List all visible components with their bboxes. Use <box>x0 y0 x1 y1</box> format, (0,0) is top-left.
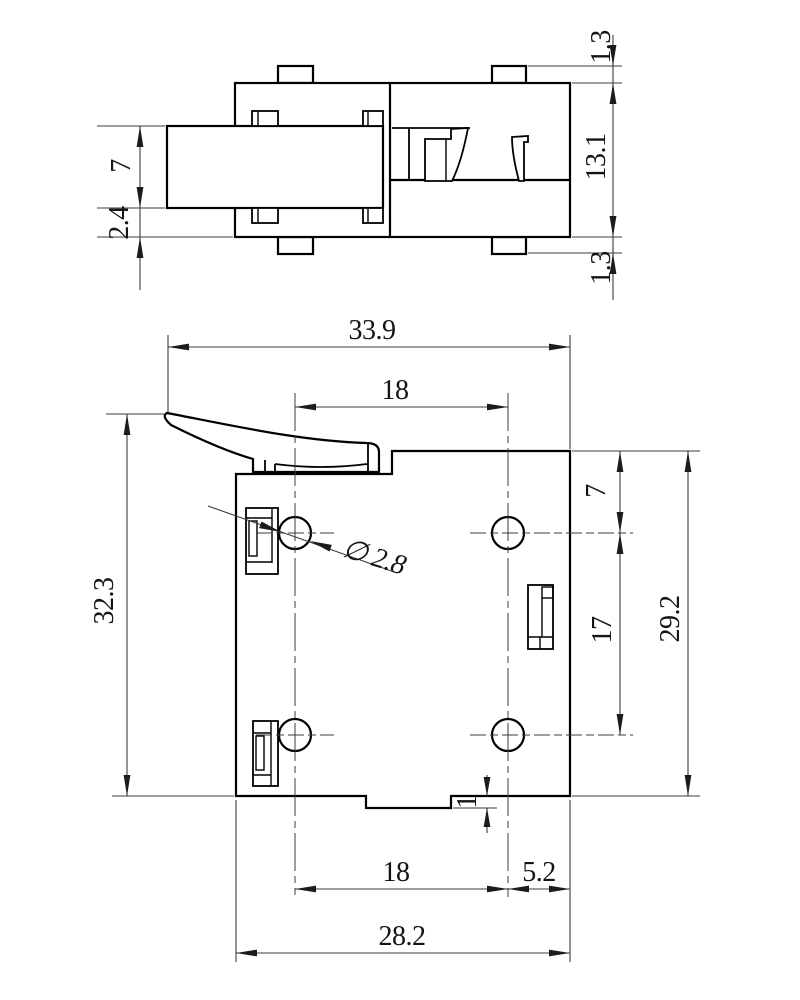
arrow-up-icon <box>617 451 624 472</box>
arrow-left-icon <box>236 950 257 957</box>
arrow-up-icon <box>610 83 617 104</box>
actuator-slider-outline <box>167 126 383 208</box>
dim-label-hole-edge-offset: 5.2 <box>522 857 556 888</box>
dim-label-body-height: 13.1 <box>581 134 612 181</box>
arrow-left-icon <box>295 404 316 411</box>
dim-overall-height: 32.3 <box>89 414 234 796</box>
clip-bottom-right <box>363 208 383 223</box>
arrow-left-icon <box>168 344 189 351</box>
lever-outline <box>165 413 379 472</box>
drawing-sheet: 7 2.4 1.3 13.1 1.3 <box>0 0 800 1000</box>
dim-label-hole-pitch-vertical: 17 <box>587 616 618 644</box>
dim-lines <box>106 414 234 796</box>
tab-bottom-right <box>492 237 526 254</box>
dim-label-tab-bottom: 1.3 <box>586 251 617 285</box>
dim-label-overall-height: 32.3 <box>89 578 120 625</box>
dim-label-slider-height: 7 <box>106 159 137 173</box>
clip-bottom-left <box>252 208 278 223</box>
arrow-up-icon <box>484 808 491 827</box>
dim-label-hole-pitch-bottom: 18 <box>383 857 410 888</box>
dim-label-slider-offset: 2.4 <box>104 206 135 240</box>
plan-body-outline <box>236 451 570 808</box>
arrow-right-icon <box>487 886 508 893</box>
dim-label-plan-body-width: 28.2 <box>379 921 426 952</box>
arrow-up-icon <box>137 237 144 258</box>
tab-bottom-left <box>278 237 313 254</box>
dim-label-overall-width: 33.9 <box>349 315 396 346</box>
latch-slot-top-left <box>246 508 278 574</box>
arrow-down-icon <box>617 512 624 533</box>
latch-slot-right <box>528 585 553 649</box>
release-lever <box>165 413 379 472</box>
arrow-up-icon <box>124 414 131 435</box>
arrow-up-icon <box>137 126 144 147</box>
tab-top-left <box>278 66 313 83</box>
clip-top-right <box>363 111 383 126</box>
dim-hole-pitch-top: 18 <box>295 375 508 410</box>
dim-label-hole-pitch-top: 18 <box>382 375 409 406</box>
dim-hole-top-offset: 7 <box>581 451 623 533</box>
arrow-right-icon <box>549 344 570 351</box>
dim-hole-edge-offset: 5.2 <box>508 857 570 892</box>
plan-view: ∅ 2.8 33.9 18 32.3 29.2 <box>89 315 700 962</box>
side-view: 7 2.4 1.3 13.1 1.3 <box>97 30 622 300</box>
tab-top-right <box>492 66 526 83</box>
arrow-down-icon <box>685 775 692 796</box>
dim-label-hole-top-offset: 7 <box>581 484 612 498</box>
arrow-right-icon <box>487 404 508 411</box>
latch-slot-bottom-left <box>253 721 278 786</box>
clip-top-left <box>252 111 278 126</box>
dim-label-plan-body-height: 29.2 <box>655 596 686 643</box>
arrow-down-icon <box>137 187 144 208</box>
dim-hole-pitch-bottom: 18 <box>295 857 508 892</box>
arrow-up-icon <box>617 533 624 554</box>
arrow-right-icon <box>549 950 570 957</box>
arrow-down-icon <box>610 216 617 237</box>
arrow-up-icon <box>685 451 692 472</box>
technical-drawing: 7 2.4 1.3 13.1 1.3 <box>0 0 800 1000</box>
dim-label-tab-top: 1.3 <box>586 30 617 64</box>
arrow-left-icon <box>295 886 316 893</box>
arrow-down-icon <box>617 714 624 735</box>
dim-hole-pitch-vertical: 17 <box>587 533 623 735</box>
slot-outline <box>253 721 278 786</box>
dim-label-boss-height: 1 <box>452 795 483 809</box>
arrow-down-icon <box>124 775 131 796</box>
